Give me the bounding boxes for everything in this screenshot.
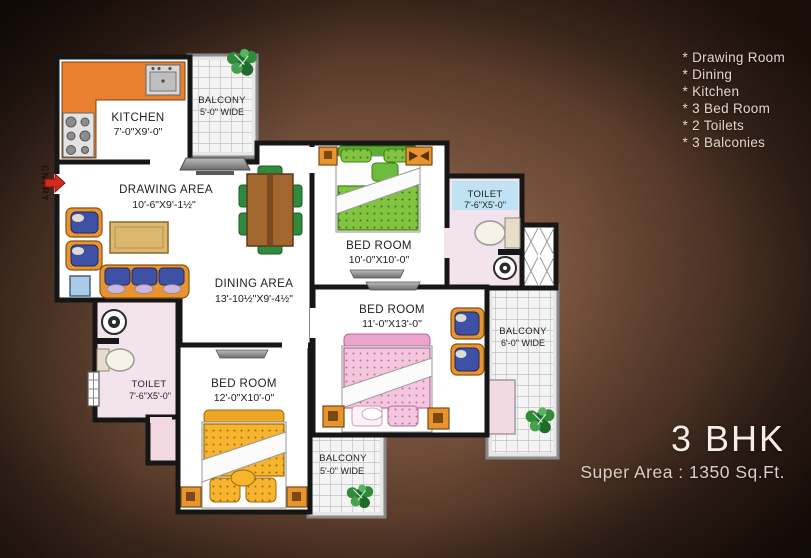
rug — [366, 282, 420, 290]
toilet-left-label: TOILET — [132, 379, 167, 390]
kitchen-label: KITCHEN — [111, 112, 164, 124]
closet — [522, 225, 556, 288]
wc-icon — [97, 349, 134, 371]
balcony-planter — [488, 380, 515, 434]
balcony-bottom-dims: 5'-0" WIDE — [320, 466, 364, 476]
bedroom-top-label: BED ROOM — [346, 240, 412, 252]
balcony-top-dims: 5'-0" WIDE — [200, 107, 244, 117]
wc-icon — [475, 218, 520, 248]
toilet-top-label: TOILET — [468, 189, 503, 200]
toilet-top-dims: 7'-6"X5'-0" — [464, 200, 506, 210]
feature-item: * 3 Balconies — [683, 134, 785, 151]
kitchen-stove-icon — [63, 113, 94, 157]
bed-pink — [342, 334, 432, 432]
coffee-table — [110, 222, 168, 253]
kitchen-dims: 7'-0"X9'-0" — [114, 126, 163, 138]
nightstand — [428, 408, 449, 429]
dining-area-dims: 13'-10½"X9'-4½" — [215, 293, 293, 305]
bedroom-bottom-label: BED ROOM — [211, 378, 277, 390]
floorplan-poster: KITCHEN 7'-0"X9'-0" BALCONY 5'-0" WIDE D… — [0, 0, 811, 558]
feature-item: * 3 Bed Room — [683, 100, 785, 117]
side-table — [70, 276, 90, 296]
washbasin-icon — [102, 310, 126, 334]
armchair — [66, 241, 102, 270]
plan-summary: 3 BHK Super Area : 1350 Sq.Ft. — [580, 420, 785, 483]
hallway — [148, 417, 178, 463]
bedroom-bottom-dims: 12'-0"X10'-0" — [214, 392, 275, 404]
tv-cabinet-icon — [406, 147, 432, 165]
feature-list: * Drawing Room * Dining * Kitchen * 3 Be… — [683, 49, 785, 151]
kitchen-sink-icon — [146, 65, 180, 95]
dining-area-label: DINING AREA — [215, 278, 294, 290]
drawing-area-label: DRAWING AREA — [119, 184, 213, 196]
feature-item: * 2 Toilets — [683, 117, 785, 134]
nightstand — [323, 406, 344, 427]
balcony-right-dims: 6'-0" WIDE — [501, 338, 545, 348]
feature-item: * Drawing Room — [683, 49, 785, 66]
toilet-left-dims: 7'-6"X5'-0" — [129, 391, 171, 401]
armchair — [66, 208, 102, 237]
bed-orange — [202, 410, 286, 508]
feature-item: * Dining — [683, 66, 785, 83]
nightstand — [181, 487, 201, 507]
plan-title: 3 BHK — [580, 420, 785, 458]
bedroom-top-dims: 10'-0"X10'-0" — [349, 254, 410, 266]
plan-subtitle: Super Area : 1350 Sq.Ft. — [580, 462, 785, 483]
balcony-top-label: BALCONY — [198, 95, 246, 106]
bedroom-right-label: BED ROOM — [359, 304, 425, 316]
drawing-area-dims: 10'-6"X9'-1½" — [132, 199, 196, 211]
bedroom-right-dims: 11'-0"X13'-0" — [362, 318, 422, 330]
balcony-right-label: BALCONY — [499, 326, 547, 337]
washbasin-icon — [494, 257, 516, 279]
feature-item: * Kitchen — [683, 83, 785, 100]
balcony-bottom-label: BALCONY — [319, 453, 367, 464]
nightstand — [287, 487, 307, 507]
rug — [216, 350, 268, 358]
rug — [350, 270, 404, 278]
window-icon — [88, 372, 99, 406]
nightstand — [319, 147, 337, 165]
armchair — [451, 308, 484, 339]
sofa — [100, 265, 189, 298]
armchair — [451, 344, 484, 375]
dining-table — [239, 166, 302, 254]
